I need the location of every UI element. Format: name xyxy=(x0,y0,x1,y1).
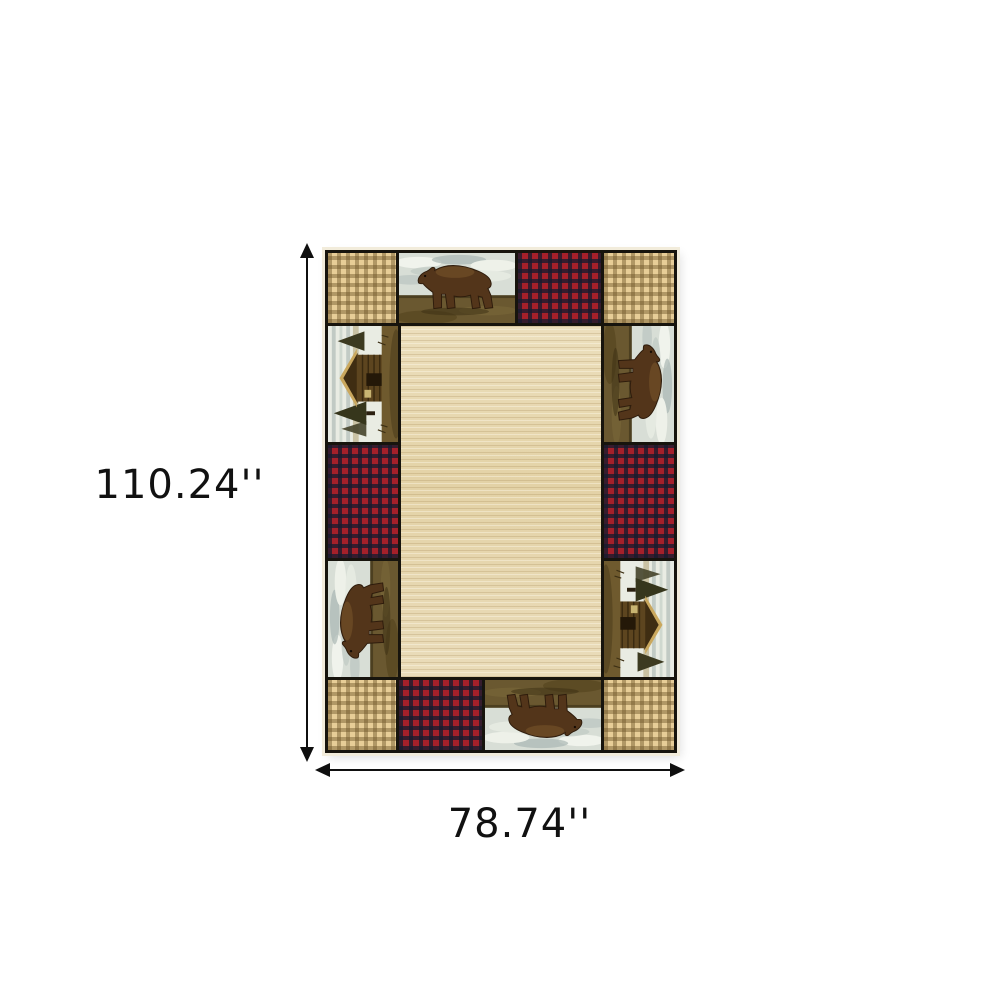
tan-gingham-swatch xyxy=(328,680,396,750)
red-buffalo-plaid-swatch xyxy=(604,445,674,558)
rug-border-left-column xyxy=(328,326,398,677)
rug-border-right-column xyxy=(604,326,674,677)
cabin-scene-right xyxy=(604,561,674,677)
cabin-scene-left xyxy=(328,326,398,442)
tan-gingham-swatch xyxy=(604,253,674,323)
arrow-right-icon xyxy=(670,763,685,777)
height-dimension-label: 110.24'' xyxy=(72,462,287,508)
red-buffalo-plaid-swatch xyxy=(518,253,601,323)
bear-scene-right xyxy=(604,326,674,442)
height-dimension-line xyxy=(306,256,308,748)
bear-scene-bottom xyxy=(485,680,601,750)
arrow-down-icon xyxy=(300,747,314,762)
product-diagram: 110.24'' 78.74'' xyxy=(0,0,1000,1000)
red-buffalo-plaid-swatch xyxy=(328,445,398,558)
red-buffalo-plaid-swatch xyxy=(399,680,482,750)
tan-gingham-swatch xyxy=(604,680,674,750)
rug-border-bottom-row xyxy=(328,680,674,750)
rug-center-field xyxy=(401,326,601,677)
arrow-left-icon xyxy=(315,763,330,777)
rug-border-top-row xyxy=(328,253,674,323)
bear-scene-top xyxy=(399,253,515,323)
width-dimension-line xyxy=(329,769,670,771)
rug-middle-band xyxy=(328,326,674,677)
bear-scene-left xyxy=(328,561,398,677)
rug-image xyxy=(325,250,677,753)
arrow-up-icon xyxy=(300,243,314,258)
width-dimension-label: 78.74'' xyxy=(412,801,627,847)
tan-gingham-swatch xyxy=(328,253,396,323)
